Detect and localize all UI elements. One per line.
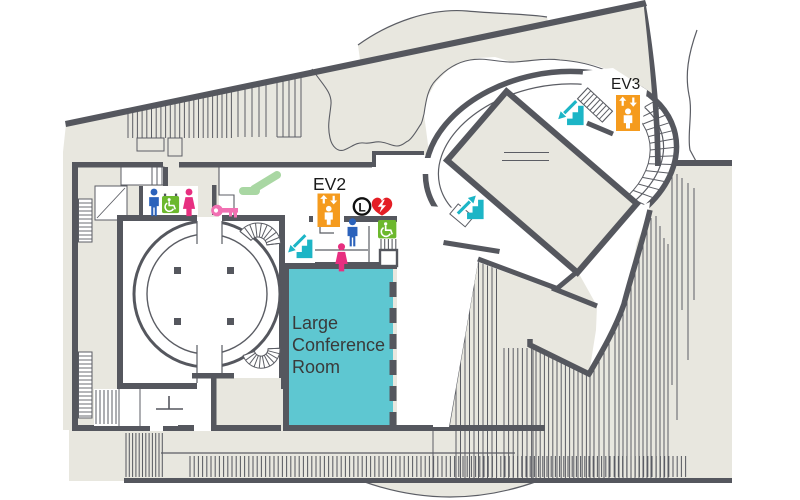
svg-text:Conference: Conference: [292, 335, 385, 355]
svg-text:Large: Large: [292, 313, 338, 333]
svg-text:EV3: EV3: [611, 76, 640, 93]
svg-text:EV2: EV2: [313, 174, 346, 194]
svg-text:Room: Room: [292, 357, 340, 377]
svg-text:L: L: [358, 201, 365, 215]
